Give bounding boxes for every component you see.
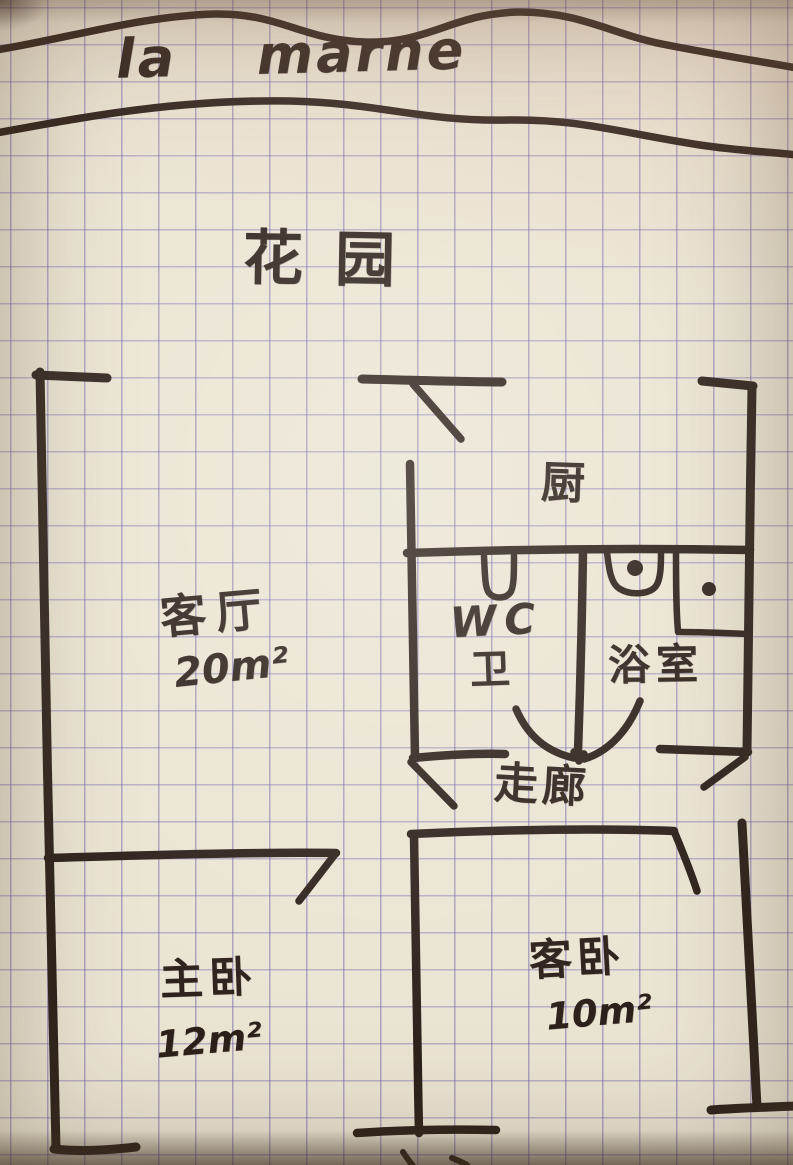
wall-top-left-segment (36, 375, 107, 378)
wall-right-bottom-foot (711, 1106, 793, 1110)
bath-partition-horizontal (678, 632, 747, 634)
wall-wc-bottom (413, 754, 505, 758)
toilet-dot (627, 560, 643, 576)
corridor-label: 走廊 (493, 762, 591, 811)
wall-right-lower (742, 823, 757, 1107)
bath-partition-vertical (676, 551, 678, 631)
bottom-mark-left (403, 1152, 413, 1165)
door-swing-guest-bedroom (674, 831, 697, 891)
wall-bath-bottom (660, 749, 748, 752)
bottom-mark-right (452, 1158, 467, 1165)
wavy-line-bottom (0, 101, 793, 155)
bottom-edge-marks (403, 1152, 467, 1165)
door-swing-right-entry (704, 757, 745, 787)
bathroom-label: 浴室 (608, 643, 705, 687)
wall-top-right-segment (702, 381, 753, 386)
entry-arrow-tip (574, 752, 584, 761)
entry-arrow-left-wing (516, 709, 574, 758)
garden-label: 花园 (242, 228, 427, 291)
wall-master-guest-bottom-foot (357, 1130, 496, 1133)
wc-alt-label: 卫 (469, 649, 510, 690)
guest-bedroom-area: 10m² (545, 989, 654, 1035)
guest-bedroom-label: 客卧 (528, 936, 626, 984)
wall-left-bottom-foot (54, 1147, 136, 1150)
floorplan-ink-drawing (0, 0, 793, 1165)
interior-walls (48, 464, 750, 1133)
wall-wc-bath-divider (578, 551, 583, 752)
door-swing-master-bedroom (299, 853, 336, 901)
wall-left (40, 372, 56, 1149)
wall-kitchen-bottom (407, 549, 750, 553)
drain-icon (702, 582, 716, 596)
master-bedroom-area: 12m² (155, 1017, 264, 1063)
wall-corridor-bottom (411, 830, 674, 834)
door-swing-living-corridor (411, 762, 454, 806)
wall-master-guest-divider (414, 835, 419, 1133)
wc-label: WC (449, 598, 544, 645)
wall-kitchen-left (410, 464, 415, 757)
wall-right-upper (747, 388, 752, 751)
floorplan-photo: la marne 花园 客厅 20m² 厨 WC 卫 浴室 走廊 主卧 12m²… (0, 0, 793, 1165)
living-room-label: 客厅 (158, 585, 274, 641)
wall-living-master-divider (48, 853, 336, 858)
wall-top-middle-segment (362, 379, 502, 382)
page-title: la marne (115, 23, 466, 86)
entry-arrow-right-wing (584, 701, 640, 759)
kitchen-label: 厨 (540, 461, 586, 507)
door-swing-garden-kitchen (413, 384, 461, 439)
sink-icon (484, 556, 514, 598)
master-bedroom-label: 主卧 (159, 956, 258, 1002)
living-room-area: 20m² (172, 642, 290, 694)
